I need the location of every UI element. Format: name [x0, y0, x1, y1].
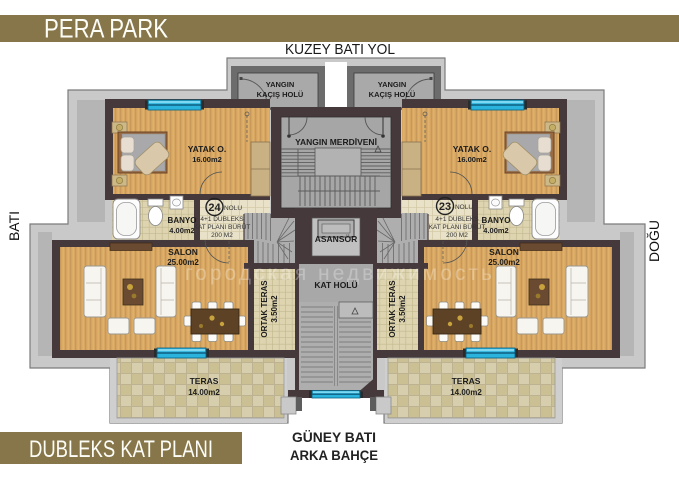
svg-text:BATI: BATI — [6, 211, 22, 241]
svg-text:DUBLEKS KAT PLANI: DUBLEKS KAT PLANI — [29, 436, 213, 463]
svg-text:14.00m2: 14.00m2 — [450, 388, 482, 397]
svg-text:YANGIN: YANGIN — [266, 80, 294, 89]
svg-text:TERAS: TERAS — [452, 376, 481, 386]
svg-text:4.00m2: 4.00m2 — [483, 226, 508, 235]
svg-text:24: 24 — [208, 202, 221, 214]
svg-text:3.50m2: 3.50m2 — [398, 295, 407, 323]
svg-text:16.00m2: 16.00m2 — [457, 155, 487, 164]
svg-text:TERAS: TERAS — [190, 376, 219, 386]
svg-text:KAT HOLÜ: KAT HOLÜ — [314, 280, 357, 290]
svg-text:DOĞU: DOĞU — [646, 220, 662, 262]
svg-text:KAÇIŞ HOLÜ: KAÇIŞ HOLÜ — [257, 90, 304, 99]
svg-text:BANYO: BANYO — [168, 216, 197, 225]
svg-text:YANGIN: YANGIN — [378, 80, 406, 89]
svg-text:4+1 DUBLEKS: 4+1 DUBLEKS — [200, 216, 244, 223]
svg-text:SALON: SALON — [489, 247, 519, 257]
svg-text:200 M2: 200 M2 — [446, 232, 468, 239]
svg-text:YATAK O.: YATAK O. — [188, 144, 227, 154]
svg-text:25.00m2: 25.00m2 — [488, 258, 520, 267]
svg-text:ORTAK TERAS: ORTAK TERAS — [388, 280, 397, 338]
svg-text:3.50m2: 3.50m2 — [270, 295, 279, 323]
svg-text:16.00m2: 16.00m2 — [192, 155, 222, 164]
svg-text:4.00m2: 4.00m2 — [169, 226, 194, 235]
svg-text:ORTAK TERAS: ORTAK TERAS — [260, 280, 269, 338]
svg-text:ARKA BAHÇE: ARKA BAHÇE — [290, 448, 378, 463]
svg-text:NOLU: NOLU — [455, 204, 473, 211]
svg-text:YATAK O.: YATAK O. — [453, 144, 492, 154]
svg-text:YANGIN MERDİVENİ: YANGIN MERDİVENİ — [295, 137, 377, 147]
svg-text:KAÇIŞ HOLÜ: KAÇIŞ HOLÜ — [369, 90, 416, 99]
svg-text:ASANSÖR: ASANSÖR — [315, 234, 358, 244]
svg-text:KAT PLANI BÜRÜT: KAT PLANI BÜRÜT — [194, 223, 251, 231]
svg-text:KUZEY BATI YOL: KUZEY BATI YOL — [285, 41, 395, 58]
svg-text:BANYO: BANYO — [482, 216, 511, 225]
svg-text:200 M2: 200 M2 — [211, 232, 233, 239]
svg-text:4+1 DUBLEKS: 4+1 DUBLEKS — [435, 216, 479, 223]
svg-text:GÜNEY BATI: GÜNEY BATI — [292, 430, 376, 445]
svg-text:KAT PLANI BÜRÜT: KAT PLANI BÜRÜT — [429, 223, 486, 231]
svg-text:SALON: SALON — [168, 247, 198, 257]
svg-text:14.00m2: 14.00m2 — [188, 388, 220, 397]
svg-text:23: 23 — [439, 201, 451, 213]
svg-text:PERA PARK: PERA PARK — [44, 14, 168, 44]
svg-text:25.00m2: 25.00m2 — [167, 258, 199, 267]
svg-text:NOLU: NOLU — [224, 205, 242, 212]
